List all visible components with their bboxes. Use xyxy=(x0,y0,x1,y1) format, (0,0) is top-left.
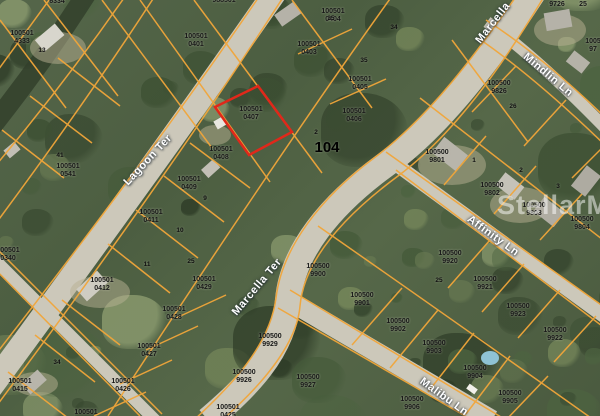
street-label: Marcella xyxy=(473,0,513,46)
watermark: StellarMLS xyxy=(497,190,600,221)
lot-number: 3 xyxy=(556,183,560,190)
lot-number: 13 xyxy=(38,47,45,54)
parcel-id-label: 25 xyxy=(579,1,587,9)
parcel-id-label: 1005010406 xyxy=(342,108,365,123)
parcel-id-label: 1005010340 xyxy=(0,247,20,262)
parcel-id-label: 1005010401 xyxy=(184,33,207,48)
parcel-id-label: 1005010403 xyxy=(297,41,320,56)
parcel-id-label: 1005010428 xyxy=(162,306,185,321)
parcel-id-label: 1005009903 xyxy=(422,340,445,355)
parcel-id-label: 988501 xyxy=(212,0,235,5)
parcel-id-label: 100501 xyxy=(74,409,97,416)
parcel-id-label: 1005009927 xyxy=(296,374,319,389)
lot-number: 25 xyxy=(187,258,194,265)
parcel-id-label: 1005009801 xyxy=(425,149,448,164)
parcel-id-label: 1005010405 xyxy=(348,76,371,91)
lot-number: 2 xyxy=(314,129,318,136)
parcel-id-label: 1005009900 xyxy=(306,263,329,278)
parcel-id-label: 1005009906 xyxy=(400,396,423,411)
lot-number: 34 xyxy=(53,359,60,366)
parcel-id-label: 1005009902 xyxy=(386,318,409,333)
block-number: 104 xyxy=(314,139,339,156)
lot-number: 34 xyxy=(390,24,397,31)
lot-number: 25 xyxy=(435,277,442,284)
street-label: Marcella Ter xyxy=(230,256,285,318)
parcel-id-label: 1005009926 xyxy=(232,369,255,384)
lot-number: 1 xyxy=(472,157,476,164)
lot-number: 11 xyxy=(144,261,151,268)
parcel-id-label: 1005010426 xyxy=(111,378,134,393)
parcel-id-label: 1005014333 xyxy=(10,30,33,45)
lot-number: 26 xyxy=(509,103,516,110)
parcel-id-label: 1005010411 xyxy=(139,209,162,224)
parcel-id-label: 1005010425 xyxy=(216,404,239,416)
street-label: Mindlin Ln xyxy=(521,51,575,99)
parcel-id-label: 1005009920 xyxy=(438,250,461,265)
parcel-id-label: 1005010409 xyxy=(177,176,200,191)
parcel-id-label: 1005010427 xyxy=(137,343,160,358)
parcel-id-label: 1005010408 xyxy=(209,146,232,161)
parcel-id-label: 1005010412 xyxy=(90,277,113,292)
lot-number: 35 xyxy=(360,57,367,64)
street-label: Malibu Ln xyxy=(418,375,471,416)
lot-number: 9 xyxy=(203,195,207,202)
parcel-id-label: 1005009905 xyxy=(498,390,521,405)
street-label: Lagoon Ter xyxy=(121,132,174,188)
parcel-id-label: 1005009923 xyxy=(506,303,529,318)
lot-number: 10 xyxy=(176,227,183,234)
lot-number: 2 xyxy=(519,167,523,174)
parcel-id-label: 1005010415 xyxy=(8,378,31,393)
parcel-id-label: 1005009901 xyxy=(350,292,373,307)
parcel-id-label: 1005010541 xyxy=(56,163,79,178)
parcel-id-label: 1005009929 xyxy=(258,333,281,348)
lot-number: 35 xyxy=(327,15,334,22)
parcel-id-label: 9726 xyxy=(549,1,565,9)
parcel-id-label: 6334 xyxy=(49,0,65,6)
parcel-id-label: 1005009904 xyxy=(463,365,486,380)
parcel-id-label: 100597 xyxy=(585,38,600,53)
parcel-id-label: 1005010429 xyxy=(192,276,215,291)
parcel-map: 1005014333633498850110050104011005010404… xyxy=(0,0,600,416)
parcel-id-label: 1005009826 xyxy=(487,80,510,95)
parcel-id-label: 1005009921 xyxy=(473,276,496,291)
lot-number: 41 xyxy=(56,152,63,159)
parcel-id-label: 1005009922 xyxy=(543,327,566,342)
parcel-id-label: 1005010407 xyxy=(239,106,262,121)
